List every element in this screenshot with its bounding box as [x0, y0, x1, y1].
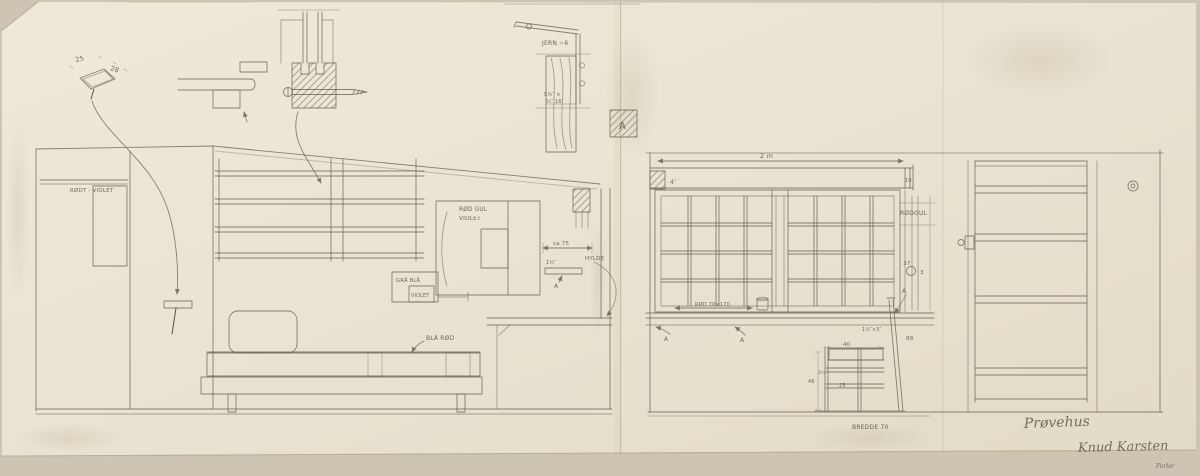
window-size-dim: RØD 70×170 [695, 301, 730, 308]
chair-seat-width-dim: 40 [843, 342, 851, 348]
cabinet-color-line1: RØD GUL [459, 206, 488, 213]
box-color-line1: GRÅ BLÅ [396, 277, 420, 284]
drawing-canvas: 25 28 [0, 0, 1200, 476]
section-marker-letter: A [619, 121, 626, 132]
sill-marker-a2: A [740, 337, 745, 344]
chair-25-dim: 25 [839, 383, 846, 389]
paper-sheet [0, 0, 1200, 476]
beam-end-dim: 10 [905, 178, 912, 184]
drawing-title: Prøvehus [1023, 414, 1090, 432]
box-color-line2: VIOLET [411, 293, 429, 299]
window-color-label: RØDGUL [900, 210, 928, 217]
corner-note: Forler [1155, 463, 1176, 470]
closet-color-label: RØDT - VIOLET [70, 187, 114, 194]
chair-height-dim: 46 [808, 379, 815, 385]
shelf-width-dim: ca 75 [553, 241, 569, 247]
sill-marker-a1: A [664, 336, 669, 343]
chair-3half-dim: 3½ [818, 369, 826, 376]
signature: Knud Karsten [1077, 439, 1169, 456]
shelf-section-marker: A [554, 283, 559, 290]
iron-label: JERN ~6 [541, 40, 568, 47]
cabinet-color-line2: VIOLET [459, 216, 481, 222]
beam-height-dim: 4″ [670, 179, 677, 186]
bench-color-label: BLÅ RØD [426, 335, 455, 342]
chair-width-label: BREDDE 70 [852, 424, 888, 431]
shelf-thickness-dim: 1½″ [546, 259, 557, 266]
chair-slat-dim: 1½″×3″ [862, 326, 882, 333]
beam-length-dim: 2 m [760, 152, 773, 160]
dim-88: 88 [906, 336, 914, 342]
post-dim-line1: 5½″ × [544, 91, 561, 98]
shelf-label: HYLDE [585, 256, 605, 262]
chair-marker-a: A [902, 288, 907, 295]
dim-37: 37 [903, 261, 911, 267]
post-dim-line2: ¾″ 16″ [546, 99, 564, 105]
dim-3: 3 [920, 270, 924, 276]
